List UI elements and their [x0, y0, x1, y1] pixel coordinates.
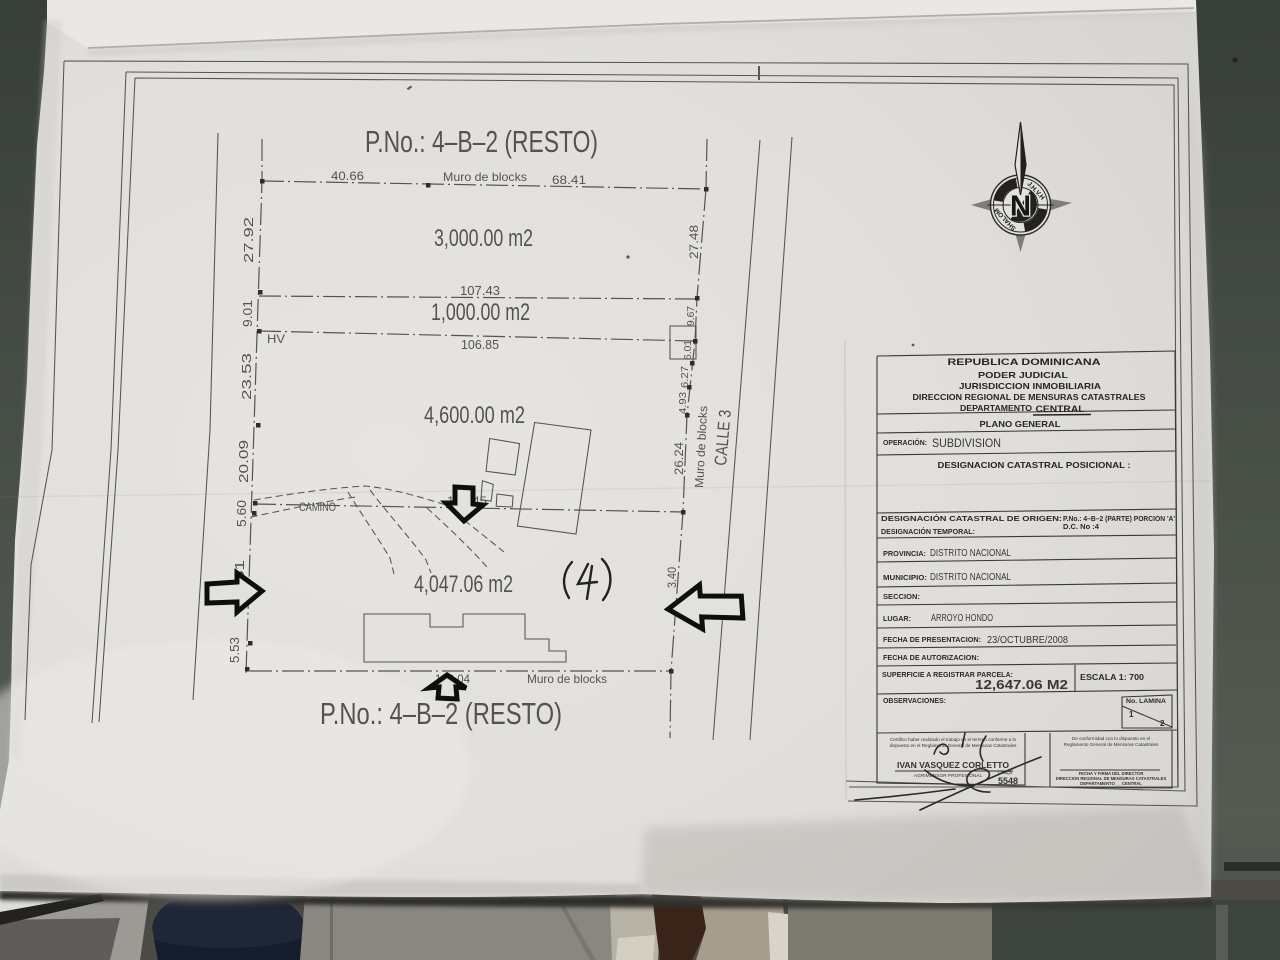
svg-text:IVAN VASQUEZ CORLETTO: IVAN VASQUEZ CORLETTO — [897, 760, 1009, 770]
svg-text:107.43: 107.43 — [460, 283, 500, 298]
svg-text:12,647.06 M2: 12,647.06 M2 — [975, 677, 1068, 692]
svg-text:PLANO GENERAL: PLANO GENERAL — [980, 419, 1061, 429]
svg-text:40.66: 40.66 — [331, 171, 364, 183]
svg-text:Certifico haber realizado el t: Certifico haber realizado el trabajo en … — [890, 737, 1017, 742]
svg-text:LUGAR:: LUGAR: — [883, 616, 911, 623]
svg-text:Muro de blocks: Muro de blocks — [443, 170, 527, 184]
svg-text:5.60: 5.60 — [235, 500, 249, 527]
svg-text:P.No.: 4–B–2 (RESTO): P.No.: 4–B–2 (RESTO) — [320, 696, 562, 731]
svg-text:4,600.00 m2: 4,600.00 m2 — [424, 402, 525, 429]
svg-text:De conformidad con lo dispuest: De conformidad con lo dispuesto en el — [1072, 736, 1150, 741]
svg-text:1,000.00 m2: 1,000.00 m2 — [431, 299, 530, 326]
svg-text:PROVINCIA:: PROVINCIA: — [883, 551, 926, 558]
svg-text:68.41: 68.41 — [552, 175, 586, 187]
svg-text:OBSERVACIONES:: OBSERVACIONES: — [883, 698, 946, 705]
svg-text:CAMINO: CAMINO — [299, 502, 336, 514]
svg-text:1: 1 — [1129, 710, 1134, 719]
svg-text:ESCALA 1: 700: ESCALA 1: 700 — [1080, 673, 1145, 682]
svg-text:4,047.06 m2: 4,047.06 m2 — [414, 571, 513, 598]
svg-text:26.24: 26.24 — [674, 441, 686, 475]
svg-text:OPERACIÓN:: OPERACIÓN: — [883, 438, 927, 447]
svg-text:23/OCTUBRE/2008: 23/OCTUBRE/2008 — [987, 635, 1068, 646]
svg-text:5548: 5548 — [998, 776, 1018, 786]
svg-text:2: 2 — [1160, 719, 1165, 728]
svg-text:4.93: 4.93 — [677, 392, 689, 414]
svg-text:FECHA DE AUTORIZACION:: FECHA DE AUTORIZACION: — [883, 655, 979, 662]
svg-text:3,000.00 m2: 3,000.00 m2 — [434, 225, 533, 252]
svg-text:9.67: 9.67 — [685, 306, 697, 326]
svg-text:27.92: 27.92 — [242, 217, 256, 263]
svg-text:Reglamento General de Mensuras: Reglamento General de Mensuras Catastral… — [1064, 742, 1159, 747]
svg-text:SECCION:: SECCION: — [883, 594, 920, 601]
svg-text:106.85: 106.85 — [461, 337, 499, 352]
svg-text:JURISDICCION INMOBILIARIA: JURISDICCION INMOBILIARIA — [959, 381, 1101, 391]
svg-text:DEPARTAMENTO __ CENTRAL: DEPARTAMENTO __ CENTRAL — [1080, 781, 1142, 786]
svg-text:DESIGNACION CATASTRAL POSICI: DESIGNACION CATASTRAL POSICIONAL : — [938, 460, 1131, 470]
svg-text:HV: HV — [267, 332, 285, 346]
svg-text:PODER JUDICIAL: PODER JUDICIAL — [978, 370, 1068, 380]
svg-text:DEPARTAMENTO: DEPARTAMENTO — [960, 404, 1032, 413]
svg-text:N: N — [1010, 191, 1031, 223]
svg-text:23.53: 23.53 — [240, 353, 254, 400]
svg-text:MUNICIPIO:: MUNICIPIO: — [883, 575, 927, 582]
svg-text:DIRECCION REGIONAL DE MENSURAS: DIRECCION REGIONAL DE MENSURAS CATASTRAL… — [913, 393, 1147, 402]
svg-text:DISTRITO NACIONAL: DISTRITO NACIONAL — [930, 548, 1011, 559]
svg-text:20.09: 20.09 — [237, 440, 251, 483]
svg-text:CENTRAL: CENTRAL — [1036, 404, 1085, 415]
svg-text:9.01: 9.01 — [241, 300, 255, 327]
svg-text:Muro de blocks: Muro de blocks — [527, 672, 607, 686]
svg-text:FECHA DE PRESENTACION:: FECHA DE PRESENTACION: — [883, 637, 981, 644]
svg-text:P.No.: 4–B–2 (RESTO): P.No.: 4–B–2 (RESTO) — [365, 124, 598, 159]
svg-text:6.27: 6.27 — [679, 366, 691, 388]
svg-text:27.48: 27.48 — [689, 225, 701, 259]
svg-text:SUBDIVISION: SUBDIVISION — [932, 438, 1001, 450]
svg-text:AGRIMENSOR PROFESIONAL: AGRIMENSOR PROFESIONAL — [914, 773, 983, 779]
svg-text:5.53: 5.53 — [228, 637, 242, 663]
svg-text:DISTRITO NACIONAL: DISTRITO NACIONAL — [930, 572, 1011, 583]
svg-text:D.C. No :4: D.C. No :4 — [1063, 522, 1100, 531]
svg-text:DESIGNACIÓN CATASTRAL DE OR: DESIGNACIÓN CATASTRAL DE ORIGEN: — [881, 514, 1062, 523]
svg-text:6.01: 6.01 — [682, 340, 694, 360]
svg-text:3.40: 3.40 — [667, 567, 679, 588]
svg-text:REPUBLICA DOMINICANA: REPUBLICA DOMINICANA — [948, 357, 1102, 367]
svg-text:ARROYO HONDO: ARROYO HONDO — [931, 613, 993, 624]
svg-text:dispuesto en el Reglamento Gen: dispuesto en el Reglamento General de Me… — [890, 743, 1018, 748]
svg-text:DESIGNACIÓN TEMPORAL:: DESIGNACIÓN TEMPORAL: — [881, 527, 975, 536]
svg-text:No. LAMINA: No. LAMINA — [1126, 698, 1166, 705]
